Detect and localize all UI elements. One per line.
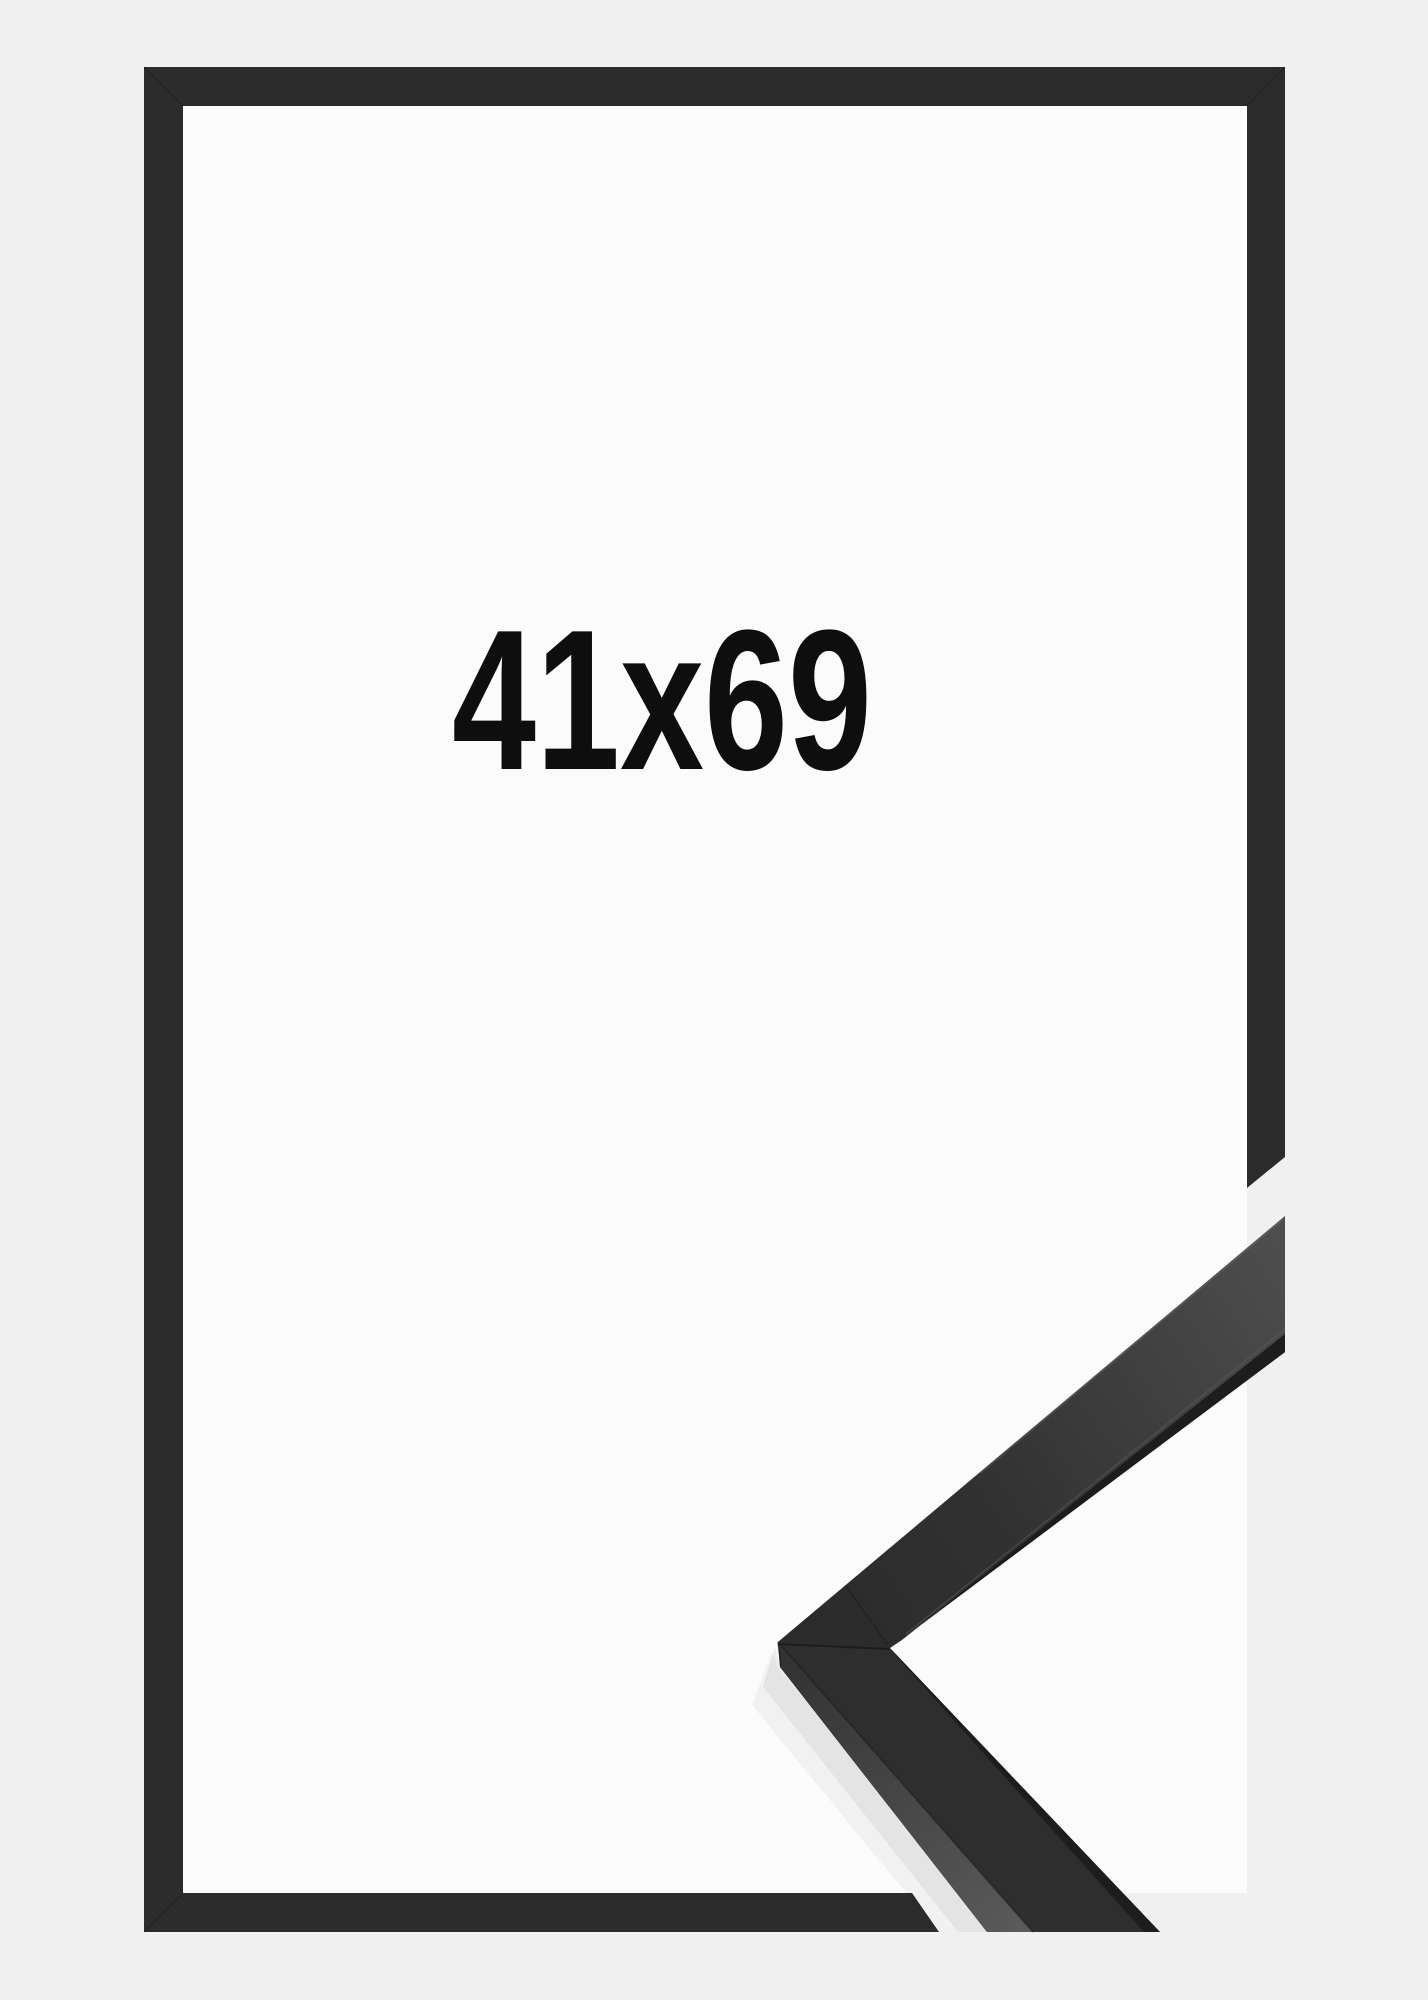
frame-bar-right: [1247, 67, 1285, 1188]
product-image: 41x69: [0, 0, 1428, 2000]
size-label: 41x69: [452, 589, 872, 812]
product-photo-svg: 41x69: [0, 0, 1428, 2000]
frame-bar-bottom: [144, 1893, 939, 1932]
frame-paper: [183, 106, 1247, 1893]
frame-bar-left: [144, 67, 183, 1932]
frame-bar-top: [144, 67, 1285, 106]
